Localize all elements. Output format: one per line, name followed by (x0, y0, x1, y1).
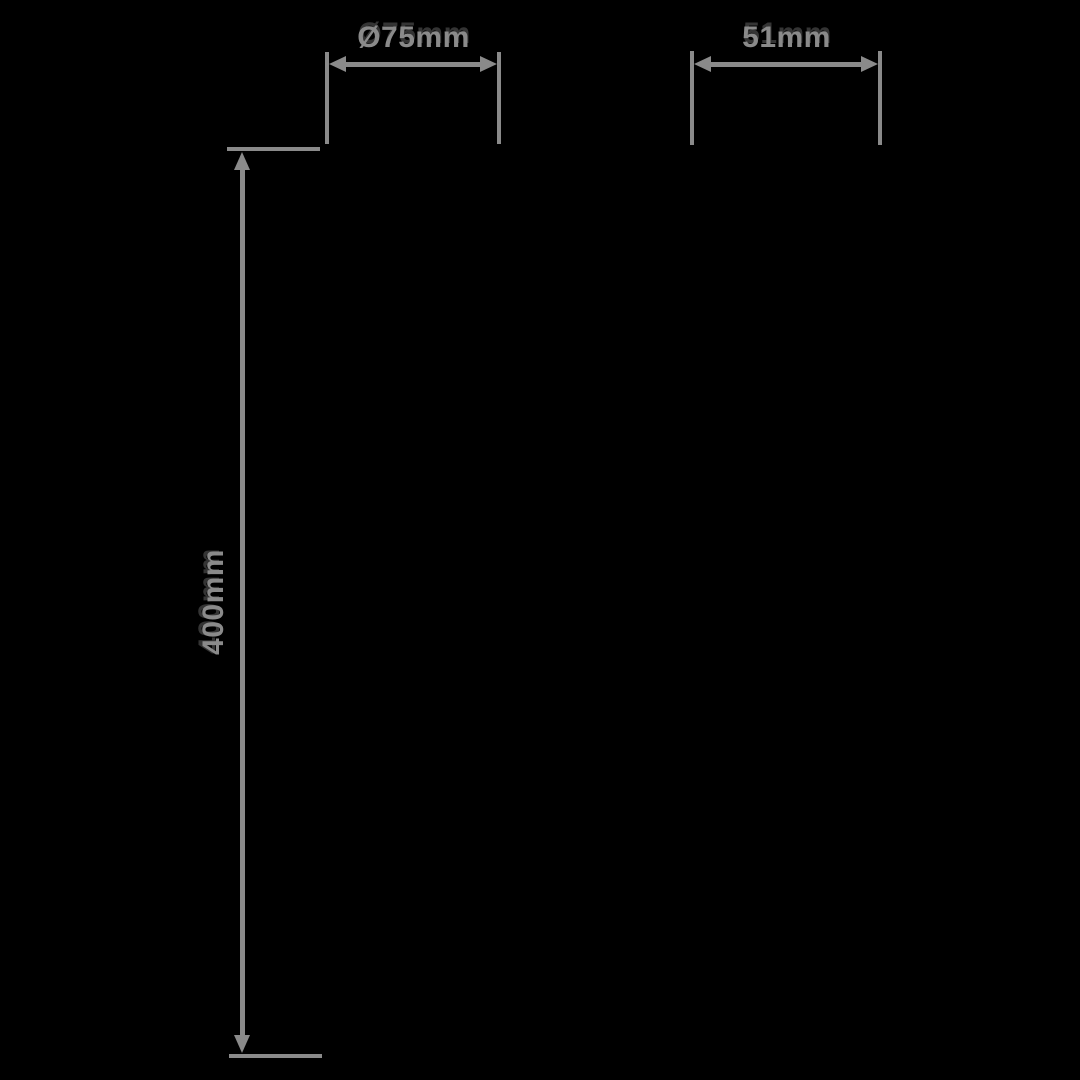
arrow-down-icon (234, 1035, 250, 1053)
width-dimension-label: 51mm (691, 21, 882, 55)
dimension-diagram: Ø75mm 51mm 400mm (0, 0, 1080, 1080)
height-extension-line-top (227, 147, 320, 151)
arrow-left-icon (329, 56, 346, 72)
arrow-up-icon (234, 152, 250, 170)
diameter-dimension-line (336, 62, 490, 67)
height-dimension-label: 400mm (197, 549, 231, 655)
arrow-left-icon (694, 56, 711, 72)
arrow-right-icon (861, 56, 878, 72)
diameter-dimension-label: Ø75mm (326, 21, 501, 55)
width-extension-line-right (878, 51, 882, 145)
width-dimension-line (701, 62, 871, 67)
height-extension-line-bottom (229, 1054, 322, 1058)
arrow-right-icon (480, 56, 497, 72)
height-dimension-line (240, 162, 245, 1044)
diameter-extension-line-right (497, 52, 501, 144)
